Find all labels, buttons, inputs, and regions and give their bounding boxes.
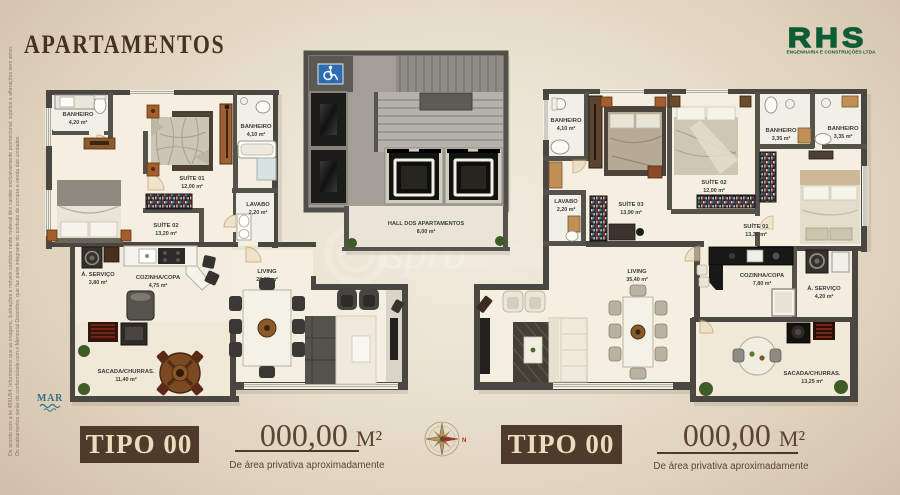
svg-text:ENGENHARIA E CONSTRUÇÕES LTDA: ENGENHARIA E CONSTRUÇÕES LTDA [786,49,876,56]
svg-text:Á. SERVIÇO: Á. SERVIÇO [81,271,115,278]
svg-text:4,20 m²: 4,20 m² [69,120,88,126]
svg-text:13,90 m²: 13,90 m² [620,210,642,216]
svg-text:TIPO 00: TIPO 00 [86,429,193,459]
svg-text:BANHEIRO: BANHEIRO [63,112,94,118]
svg-text:RHS: RHS [788,23,868,54]
svg-text:BANHEIRO: BANHEIRO [828,126,859,132]
svg-text:12,00 m²: 12,00 m² [703,188,725,194]
svg-text:SUÍTE 01: SUÍTE 01 [179,174,205,182]
svg-text:Os acabamentos serão de confor: Os acabamentos serão de conformidade com… [15,135,21,456]
svg-text:SACADA/CHURRAS.: SACADA/CHURRAS. [783,371,840,377]
svg-text:000,00 M²: 000,00 M² [683,417,806,453]
svg-text:SUÍTE 02: SUÍTE 02 [701,178,726,186]
svg-text:3,35 m²: 3,35 m² [834,134,853,140]
svg-text:LIVING: LIVING [257,269,277,275]
svg-text:13,30 m²: 13,30 m² [745,232,767,238]
svg-text:LIVING: LIVING [627,269,647,275]
svg-text:COZINHA/COPA: COZINHA/COPA [740,273,785,279]
svg-text:13,20 m²: 13,20 m² [155,231,177,237]
svg-text:12,00 m²: 12,00 m² [181,184,203,190]
svg-text:2,20 m²: 2,20 m² [557,207,576,213]
svg-text:COZINHA/COPA: COZINHA/COPA [136,275,181,281]
svg-text:4,20 m²: 4,20 m² [815,294,834,300]
svg-text:N: N [462,438,466,444]
svg-text:SACADA/CHURRAS.: SACADA/CHURRAS. [97,369,154,375]
svg-text:LAVABO: LAVABO [554,199,578,205]
svg-text:35,40 m²: 35,40 m² [626,277,648,283]
svg-text:4,10 m²: 4,10 m² [247,132,266,138]
svg-text:De acordo com a lei 4591/64. I: De acordo com a lei 4591/64. Informamos … [8,46,14,456]
svg-text:000,00 M²: 000,00 M² [260,417,383,453]
svg-text:4,10 m²: 4,10 m² [557,126,576,132]
svg-text:3,35 m²: 3,35 m² [772,136,791,142]
svg-text:SUÍTE 03: SUÍTE 03 [618,200,644,208]
svg-text:HALL DOS APARTAMENTOS: HALL DOS APARTAMENTOS [388,221,464,227]
svg-text:4,75 m²: 4,75 m² [149,283,168,289]
svg-text:APARTAMENTOS: APARTAMENTOS [24,31,225,59]
svg-text:8,00 m²: 8,00 m² [417,229,436,235]
svg-text:Á. SERVIÇO: Á. SERVIÇO [807,285,841,292]
svg-text:De área privativa aproximadame: De área privativa aproximadamente [653,461,809,472]
svg-text:11,40 m²: 11,40 m² [115,377,136,383]
svg-text:LAVABO: LAVABO [246,202,270,208]
svg-text:13,25 m²: 13,25 m² [801,379,823,385]
svg-text:SUÍTE 02: SUÍTE 02 [153,221,178,229]
svg-text:MAR: MAR [37,393,63,404]
svg-text:SUÍTE 01: SUÍTE 01 [743,222,769,230]
svg-text:2,20 m²: 2,20 m² [249,210,268,216]
svg-text:BANHEIRO: BANHEIRO [551,118,582,124]
svg-text:BANHEIRO: BANHEIRO [766,128,797,134]
svg-text:De área privativa aproximadame: De área privativa aproximadamente [229,460,385,471]
svg-text:BANHEIRO: BANHEIRO [241,124,272,130]
svg-text:7,80 m²: 7,80 m² [753,281,772,287]
svg-text:3,80 m²: 3,80 m² [89,280,108,286]
svg-text:TIPO 00: TIPO 00 [508,429,615,459]
